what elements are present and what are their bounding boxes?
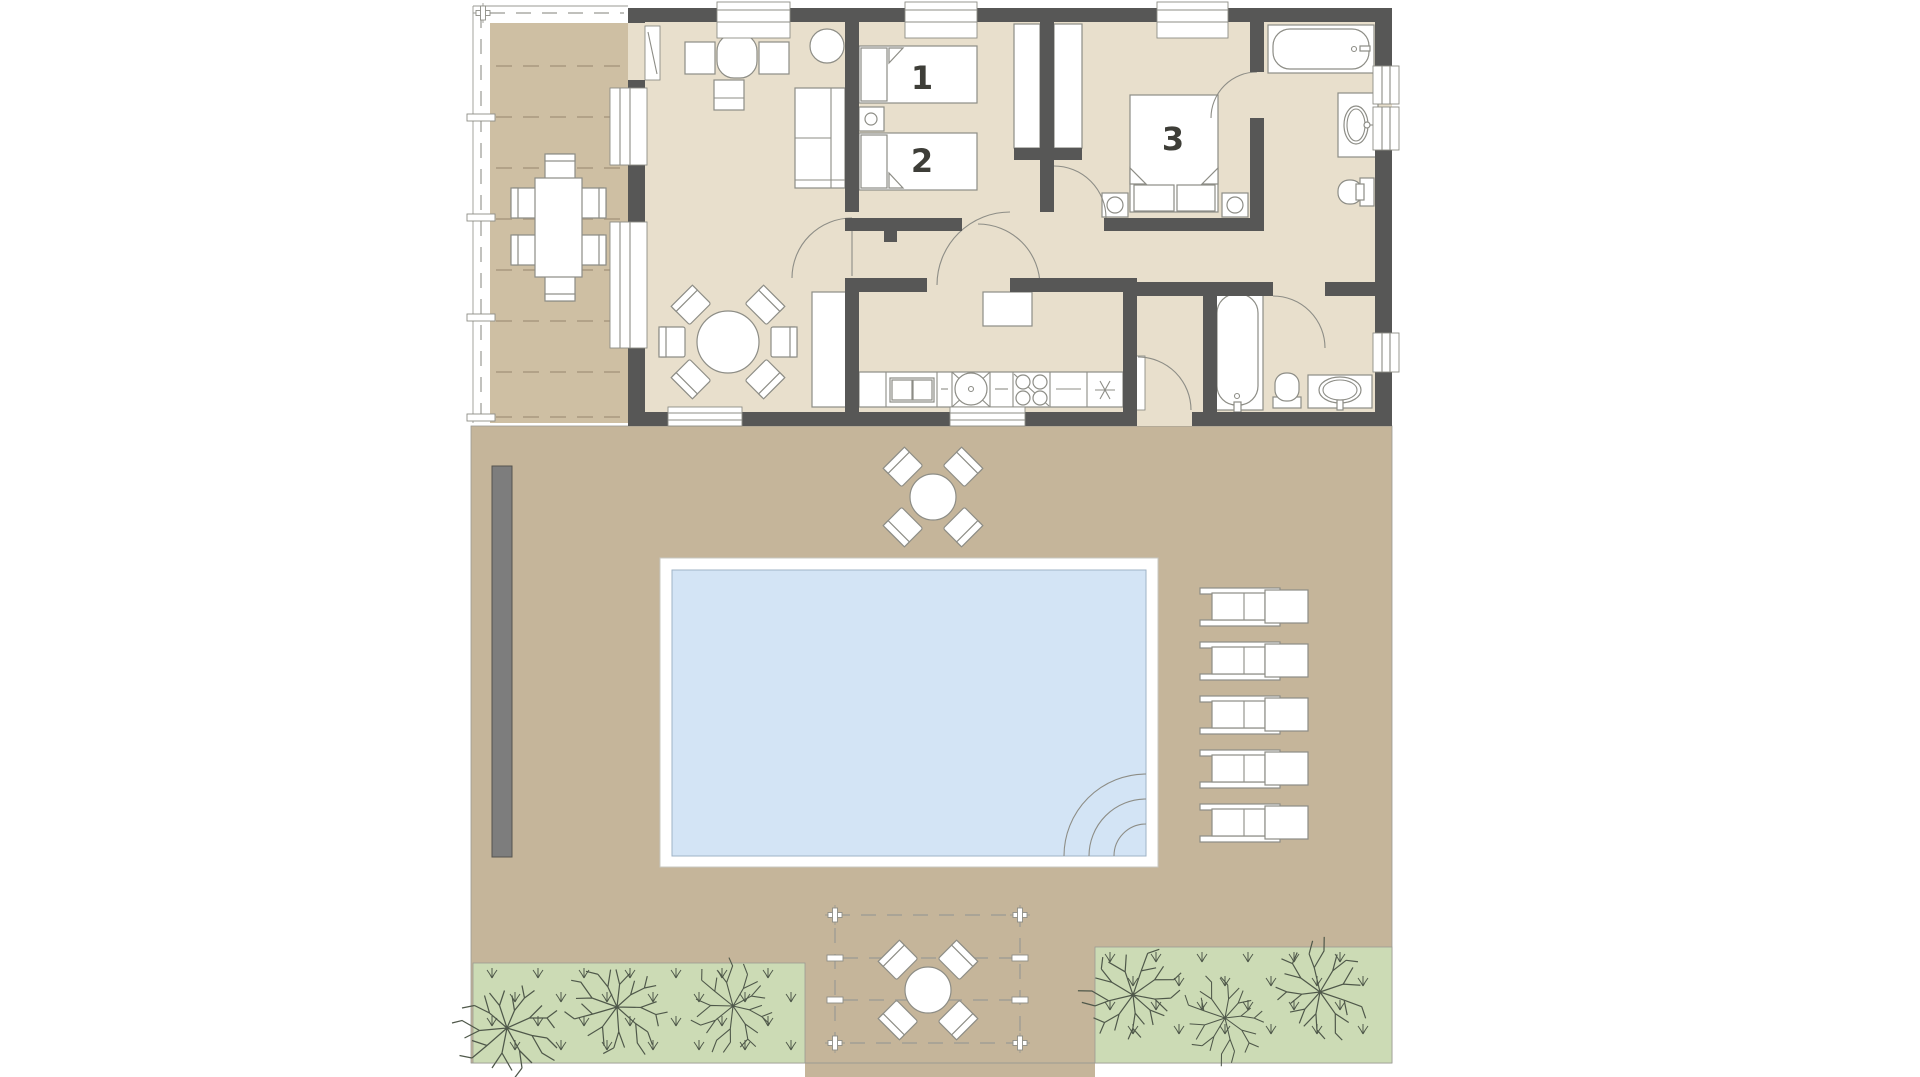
wardrobe	[1014, 24, 1040, 148]
garden-wall-bar	[492, 466, 512, 857]
sun-lounger	[1200, 588, 1308, 626]
house: 1 2 3	[610, 2, 1399, 426]
wall-wardrobe-divider	[1040, 22, 1054, 212]
floor-plan-image: 1 2 3	[0, 0, 1920, 1077]
room-label-1: 1	[911, 59, 933, 97]
window	[905, 2, 977, 38]
tall-cabinet	[812, 292, 848, 407]
garden-path-strip	[805, 1063, 1095, 1077]
kitchen-island	[983, 292, 1032, 326]
window	[668, 407, 742, 426]
window	[610, 88, 647, 165]
nightstand	[859, 107, 884, 131]
nightstand-right	[1222, 193, 1248, 217]
wall-living-bedroom	[845, 22, 859, 212]
round-side-table	[810, 29, 844, 63]
sink	[952, 372, 990, 407]
sun-lounger	[1200, 804, 1308, 842]
window	[950, 407, 1025, 426]
deck-terrace	[467, 3, 628, 423]
toilet	[1338, 178, 1374, 206]
entry-door	[645, 26, 660, 80]
sun-lounger	[1200, 750, 1308, 788]
sun-lounger	[1200, 696, 1308, 734]
window	[1373, 107, 1399, 150]
window	[1157, 2, 1228, 38]
garden	[452, 426, 1392, 1077]
lawn-right	[1067, 926, 1392, 1075]
lawn-left	[452, 948, 805, 1077]
washbasin	[1338, 93, 1378, 157]
bathtub	[1212, 288, 1263, 412]
window	[717, 2, 790, 38]
bathtub	[1268, 25, 1374, 73]
swimming-pool	[660, 558, 1158, 867]
toilet	[1273, 373, 1301, 408]
room-label-3: 3	[1162, 120, 1184, 158]
window	[1373, 66, 1399, 104]
dishwasher	[890, 378, 934, 402]
wardrobe	[1054, 24, 1082, 148]
floor-plan-page: 1 2 3	[0, 0, 1920, 1077]
sun-lounger	[1200, 642, 1308, 680]
sofa	[795, 88, 845, 188]
window	[1373, 333, 1399, 372]
kitchen-counter	[859, 372, 1123, 407]
window	[610, 222, 647, 348]
washbasin	[1308, 375, 1372, 410]
room-label-2: 2	[911, 142, 933, 180]
